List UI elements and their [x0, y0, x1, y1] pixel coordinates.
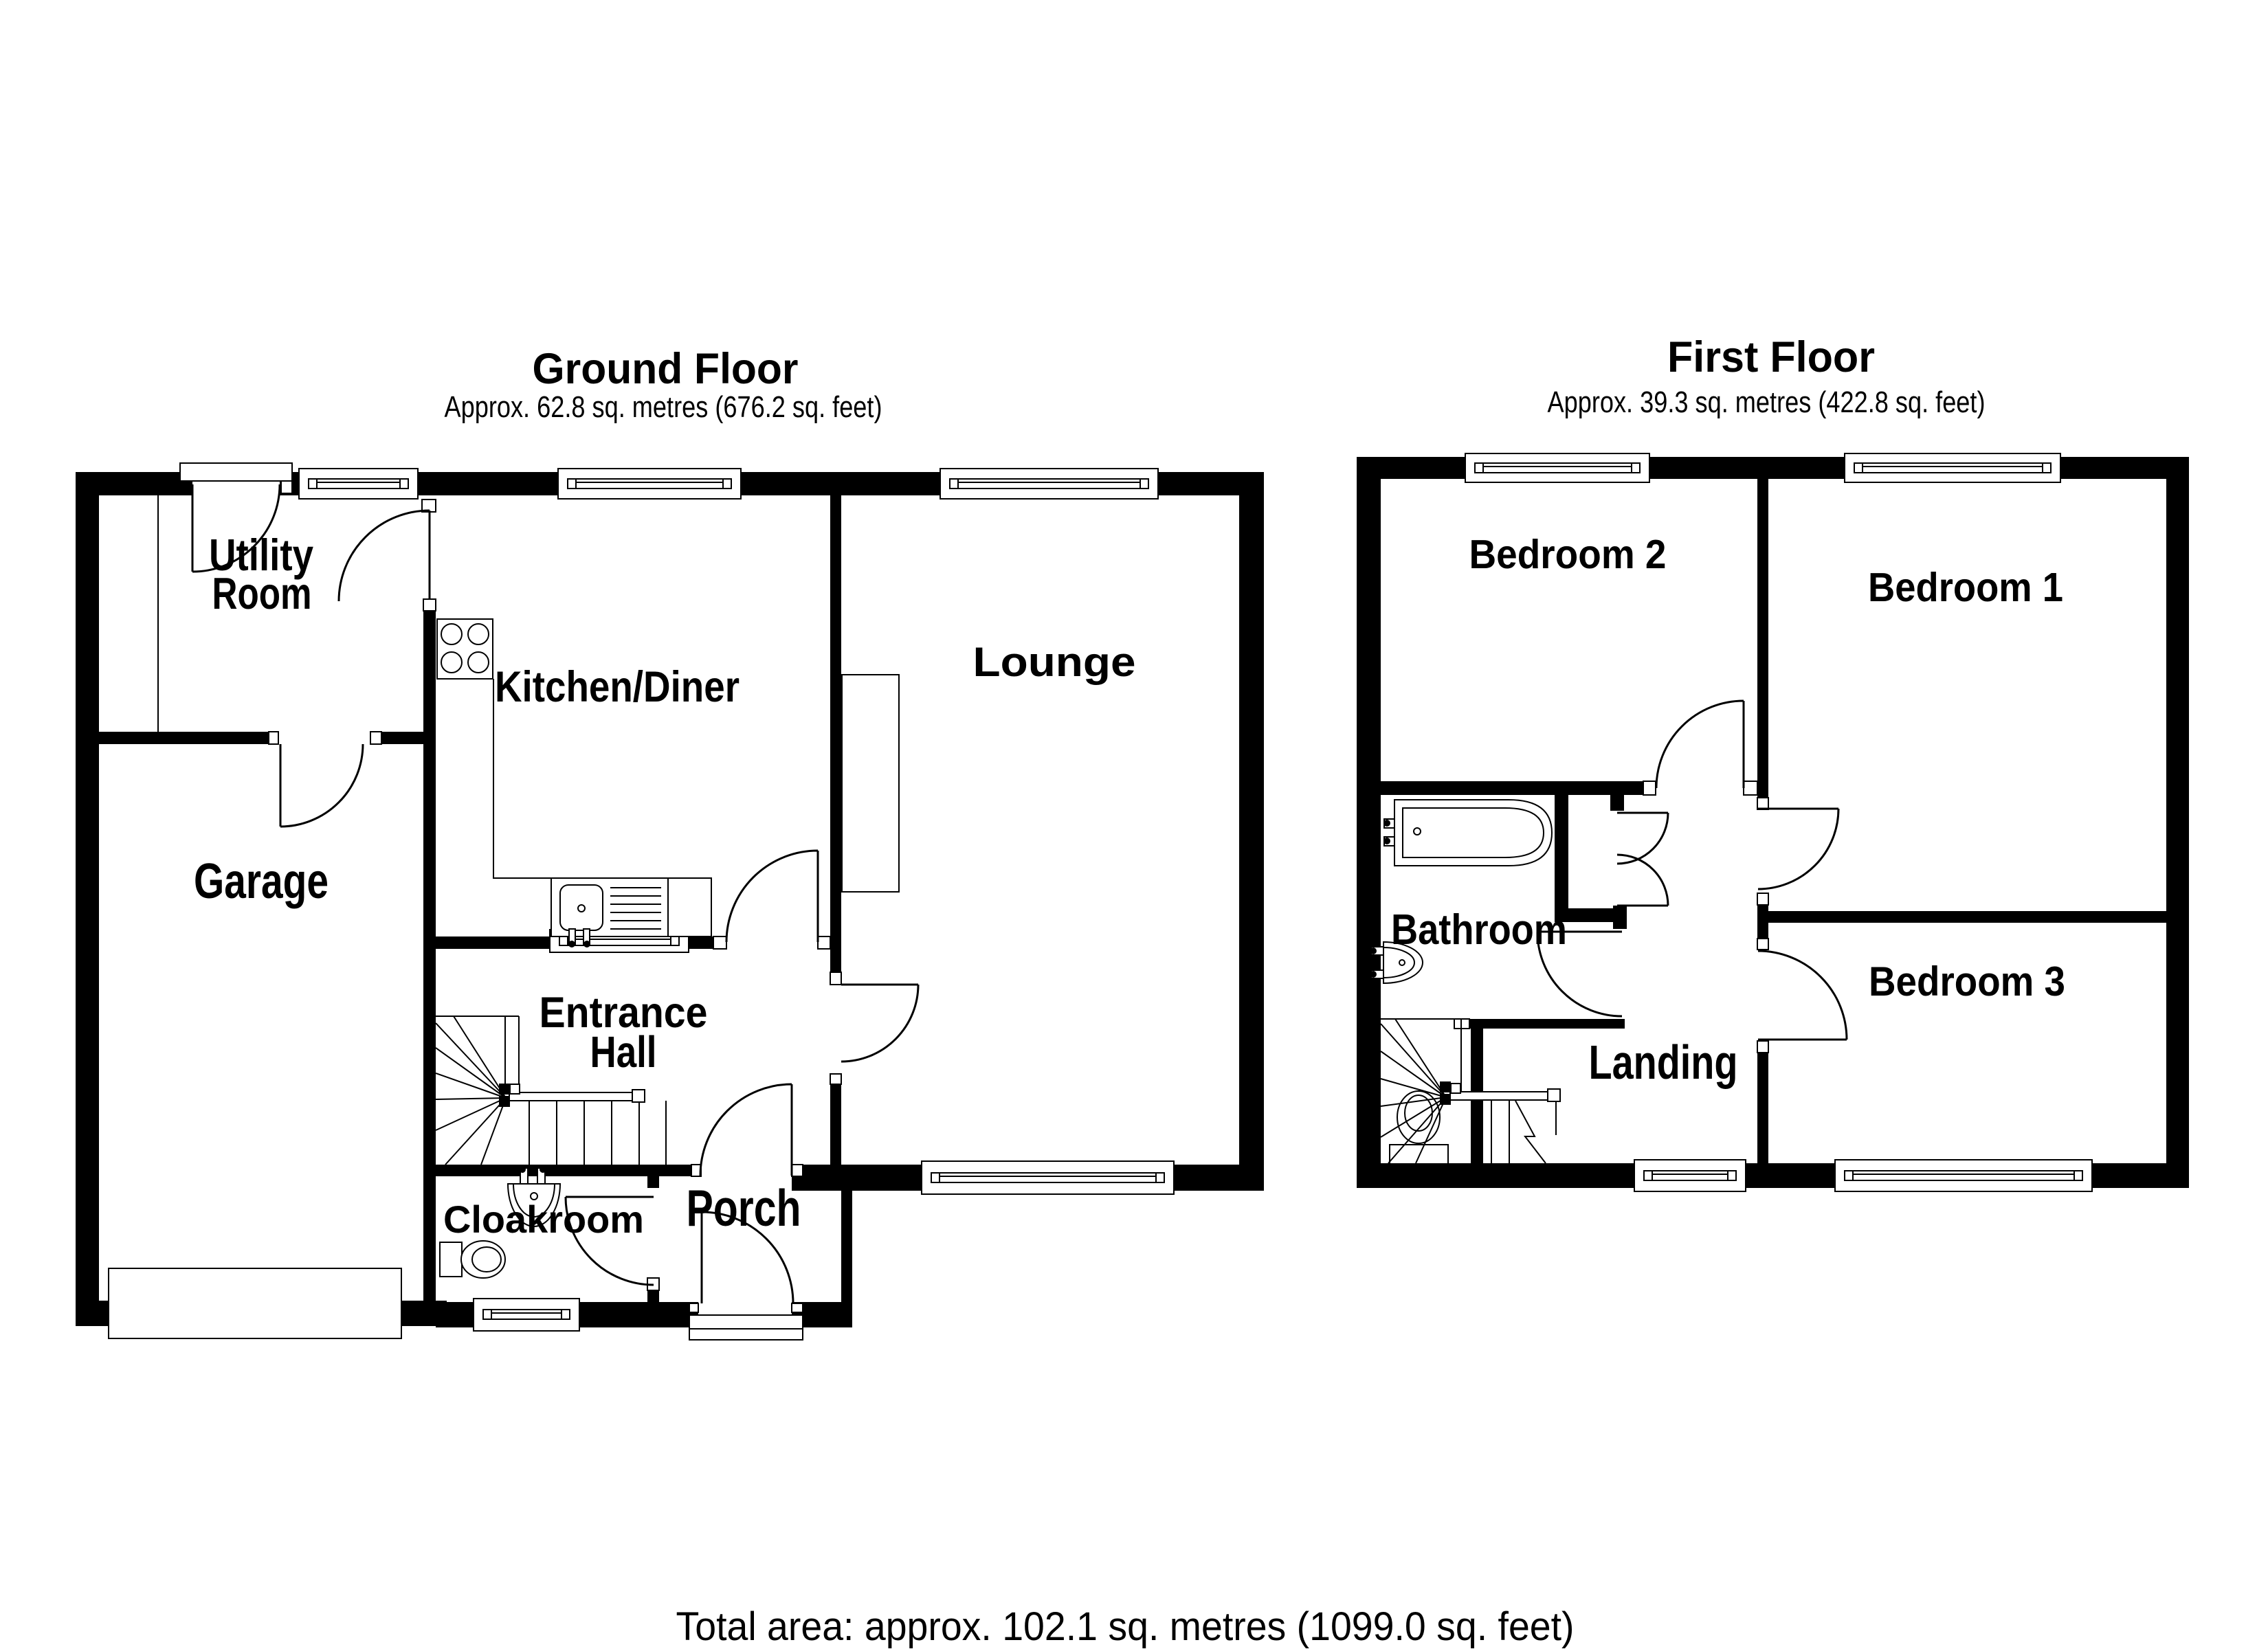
- svg-text:First Floor: First Floor: [1667, 333, 1875, 381]
- svg-text:Landing: Landing: [1589, 1035, 1738, 1089]
- svg-text:Ground Floor: Ground Floor: [533, 345, 799, 393]
- svg-text:Lounge: Lounge: [973, 639, 1136, 685]
- svg-text:Cloakroom: Cloakroom: [443, 1198, 644, 1241]
- svg-text:Bathroom: Bathroom: [1391, 906, 1567, 954]
- svg-text:Total area: approx. 102.1 sq.: Total area: approx. 102.1 sq. metres (10…: [676, 1604, 1575, 1649]
- svg-text:Approx. 39.3 sq. metres (422.8: Approx. 39.3 sq. metres (422.8 sq. feet): [1548, 385, 1986, 419]
- svg-text:Room: Room: [212, 568, 312, 618]
- svg-text:Bedroom 1: Bedroom 1: [1868, 565, 2063, 610]
- svg-text:Bedroom 3: Bedroom 3: [1869, 958, 2065, 1005]
- svg-text:Kitchen/Diner: Kitchen/Diner: [495, 663, 740, 711]
- svg-text:Bedroom 2: Bedroom 2: [1469, 532, 1667, 577]
- svg-text:Garage: Garage: [194, 854, 329, 909]
- svg-text:Porch: Porch: [687, 1179, 801, 1237]
- svg-text:Hall: Hall: [590, 1027, 657, 1077]
- svg-text:Approx. 62.8 sq. metres (676.2: Approx. 62.8 sq. metres (676.2 sq. feet): [445, 390, 882, 424]
